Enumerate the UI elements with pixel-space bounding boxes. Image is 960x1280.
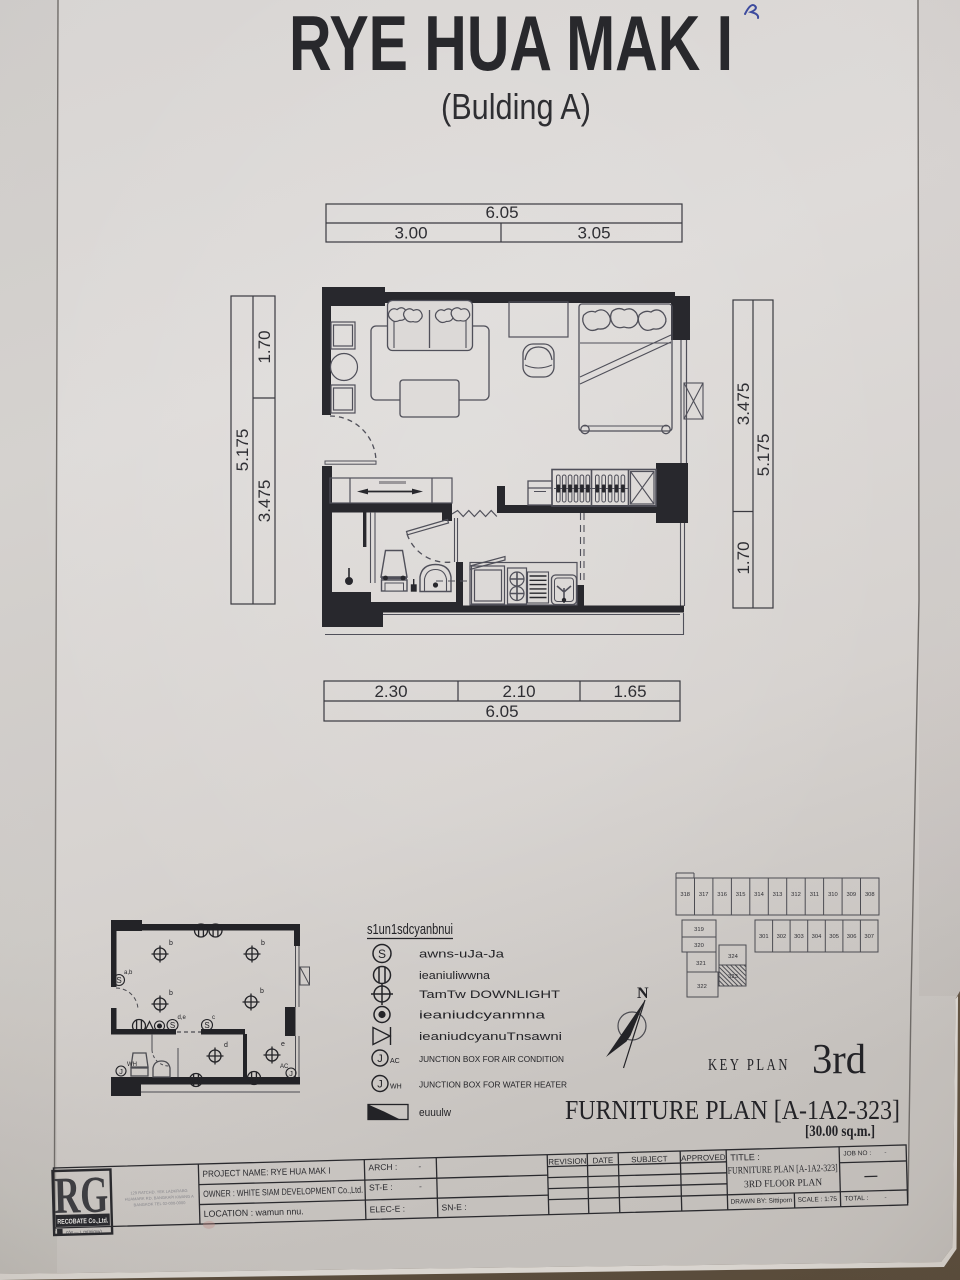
svg-text:S: S	[116, 976, 121, 985]
svg-text:ieaniudcyanmna: ieaniudcyanmna	[419, 1010, 546, 1022]
svg-text:323: 323	[728, 974, 738, 980]
svg-text:WH: WH	[127, 1062, 137, 1068]
svg-text:e: e	[281, 1041, 285, 1048]
svg-text:5.175: 5.175	[754, 434, 773, 477]
svg-text:c: c	[212, 1015, 215, 1021]
svg-text:302: 302	[777, 934, 787, 940]
svg-text:307: 307	[864, 934, 874, 940]
svg-text:3RD FLOOR PLAN: 3RD FLOOR PLAN	[744, 1177, 822, 1190]
svg-text:306: 306	[847, 934, 857, 940]
svg-text:321: 321	[696, 961, 706, 967]
svg-text:TOTAL :: TOTAL :	[844, 1195, 868, 1203]
svg-text:ieaniudcyanuTnsawni: ieaniudcyanuTnsawni	[419, 1031, 562, 1043]
svg-text:KEY PLAN: KEY PLAN	[708, 1055, 790, 1074]
svg-text:b: b	[261, 940, 265, 947]
svg-text:-: -	[884, 1149, 886, 1156]
svg-text:304: 304	[812, 934, 822, 940]
svg-text:d: d	[224, 1042, 228, 1049]
svg-text:WH: WH	[390, 1084, 402, 1091]
svg-text:301: 301	[759, 934, 769, 940]
svg-text:N: N	[637, 985, 649, 1002]
svg-text:ARCH :: ARCH :	[368, 1162, 397, 1173]
svg-text:TITLE :: TITLE :	[730, 1152, 760, 1163]
svg-text:d,e: d,e	[178, 1015, 187, 1021]
svg-text:AC: AC	[390, 1058, 400, 1065]
svg-text:-: -	[418, 1161, 421, 1171]
svg-text:324: 324	[728, 954, 738, 960]
svg-text:APPROVED: APPROVED	[681, 1153, 726, 1163]
svg-text:1.65: 1.65	[613, 682, 646, 701]
svg-text:316: 316	[717, 892, 727, 898]
svg-text:3.00: 3.00	[394, 224, 427, 243]
svg-text:JOB NO :: JOB NO :	[843, 1150, 871, 1158]
svg-text:S: S	[170, 1021, 175, 1030]
svg-text:5.175: 5.175	[233, 429, 252, 472]
svg-text:309: 309	[846, 892, 856, 898]
svg-text:6.05: 6.05	[485, 203, 518, 222]
svg-text:S: S	[204, 1021, 209, 1030]
svg-text:318: 318	[680, 892, 690, 898]
svg-text:6.05: 6.05	[485, 702, 518, 721]
svg-text:ST-E :: ST-E :	[369, 1182, 393, 1193]
svg-text:S: S	[378, 947, 386, 961]
svg-text:-: -	[419, 1181, 422, 1191]
svg-text:320: 320	[694, 943, 704, 949]
svg-text:b: b	[260, 988, 264, 995]
svg-text:a,b: a,b	[124, 970, 133, 976]
svg-text:ieaniuliwwna: ieaniuliwwna	[419, 970, 491, 982]
svg-text:b: b	[169, 990, 173, 997]
svg-text:ELEC-E :: ELEC-E :	[369, 1204, 405, 1215]
svg-text:303: 303	[794, 934, 804, 940]
svg-text:1.70: 1.70	[255, 330, 274, 363]
svg-text:319: 319	[694, 927, 704, 933]
svg-text:TamTw DOWNLIGHT: TamTw DOWNLIGHT	[419, 989, 560, 1001]
svg-text:317: 317	[699, 892, 709, 898]
svg-text:308: 308	[865, 892, 875, 898]
svg-text:305: 305	[829, 934, 839, 940]
svg-text:JUNCTION BOX FOR WATER HEATER: JUNCTION BOX FOR WATER HEATER	[419, 1080, 567, 1090]
svg-text:SUBJECT: SUBJECT	[631, 1154, 668, 1164]
svg-text:322: 322	[697, 984, 707, 990]
svg-text:—: —	[864, 1168, 877, 1183]
svg-text:FURNITURE PLAN [A-1A2-323]: FURNITURE PLAN [A-1A2-323]	[565, 1095, 900, 1125]
svg-text:REVISION: REVISION	[548, 1157, 587, 1167]
svg-text:314: 314	[754, 892, 764, 898]
svg-text:-: -	[884, 1194, 886, 1201]
svg-text:3.475: 3.475	[734, 383, 753, 426]
svg-text:J: J	[119, 1067, 123, 1076]
svg-text:JUNCTION BOX FOR AIR CONDITION: JUNCTION BOX FOR AIR CONDITION	[419, 1054, 564, 1064]
svg-text:RECOBATE Co.,Ltd.: RECOBATE Co.,Ltd.	[57, 1218, 108, 1226]
svg-text:SCALE : 1:75: SCALE : 1:75	[797, 1196, 837, 1204]
svg-text:c/w — i. m(mimw): c/w — i. m(mimw)	[66, 1229, 102, 1235]
svg-text:315: 315	[736, 892, 746, 898]
svg-text:euuulw: euuulw	[419, 1107, 451, 1119]
svg-text:313: 313	[773, 892, 783, 898]
svg-text:b: b	[169, 940, 173, 947]
svg-text:1.70: 1.70	[734, 541, 753, 574]
svg-text:(Bulding A): (Bulding A)	[441, 86, 591, 127]
svg-text:310: 310	[828, 892, 838, 898]
svg-text:SN-E :: SN-E :	[441, 1202, 466, 1213]
svg-text:J: J	[377, 1079, 383, 1091]
svg-text:312: 312	[791, 892, 801, 898]
svg-text:3rd: 3rd	[812, 1037, 866, 1083]
svg-text:DATE: DATE	[592, 1156, 613, 1166]
svg-text:RYE HUA MAK I: RYE HUA MAK I	[289, 0, 733, 87]
svg-text:[30.00 sq.m.]: [30.00 sq.m.]	[805, 1123, 875, 1140]
svg-text:3.05: 3.05	[577, 224, 610, 243]
svg-text:311: 311	[810, 892, 819, 898]
svg-text:J: J	[377, 1053, 383, 1065]
svg-text:awns-uJa-Ja: awns-uJa-Ja	[419, 949, 505, 961]
svg-text:3.475: 3.475	[255, 480, 274, 523]
svg-text:AC: AC	[280, 1064, 289, 1070]
svg-text:s1un1sdcyanbnui: s1un1sdcyanbnui	[367, 921, 453, 938]
svg-text:2.30: 2.30	[374, 682, 407, 701]
svg-text:2.10: 2.10	[502, 682, 535, 701]
svg-text:J: J	[289, 1069, 293, 1078]
